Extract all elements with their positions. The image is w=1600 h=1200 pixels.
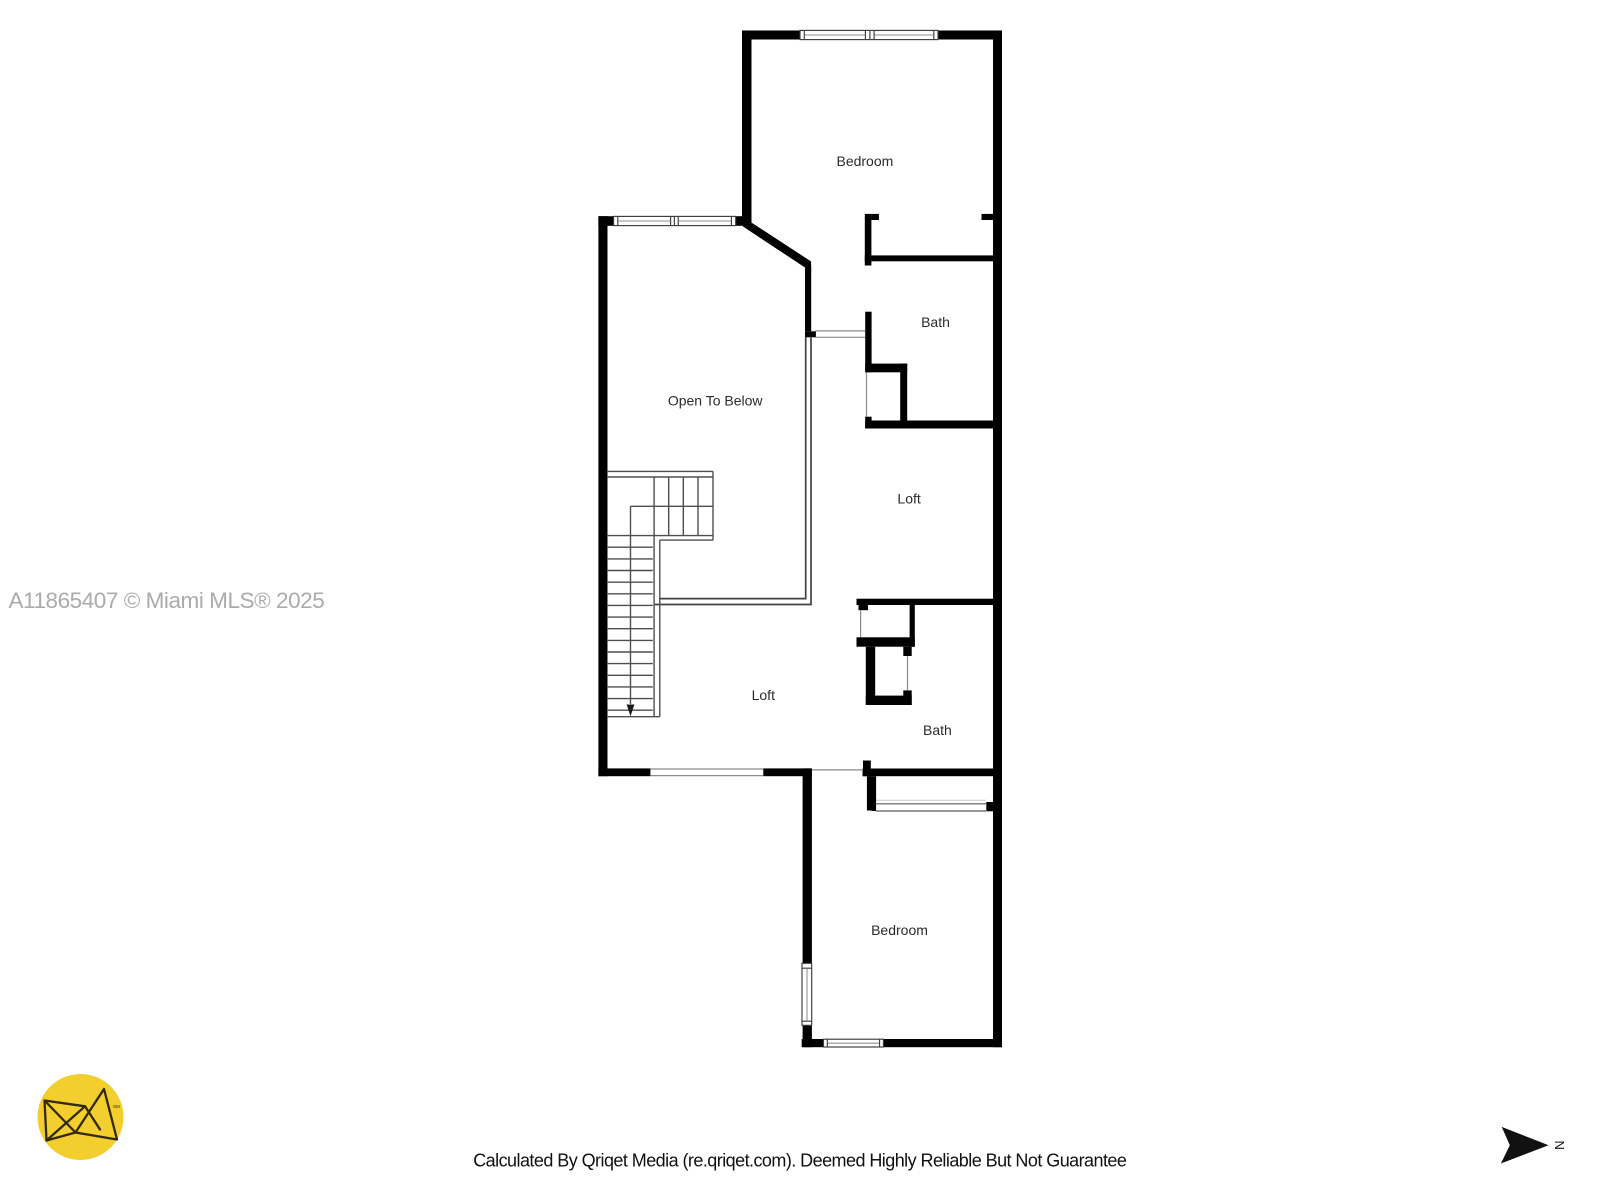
svg-text:Loft: Loft [897,490,920,506]
svg-text:A11865407 © Miami MLS® 2025: A11865407 © Miami MLS® 2025 [9,588,325,613]
svg-text:Loft: Loft [752,687,775,703]
svg-text:Calculated By Qriqet Media (re: Calculated By Qriqet Media (re.qriqet.co… [473,1150,1127,1170]
svg-text:Bedroom: Bedroom [836,153,893,169]
svg-text:Bath: Bath [921,314,950,330]
svg-text:Bath: Bath [923,722,952,738]
svg-text:SM: SM [113,1104,120,1109]
svg-text:Open To Below: Open To Below [668,393,764,409]
svg-text:Bedroom: Bedroom [871,922,928,938]
svg-text:N: N [1552,1141,1567,1150]
